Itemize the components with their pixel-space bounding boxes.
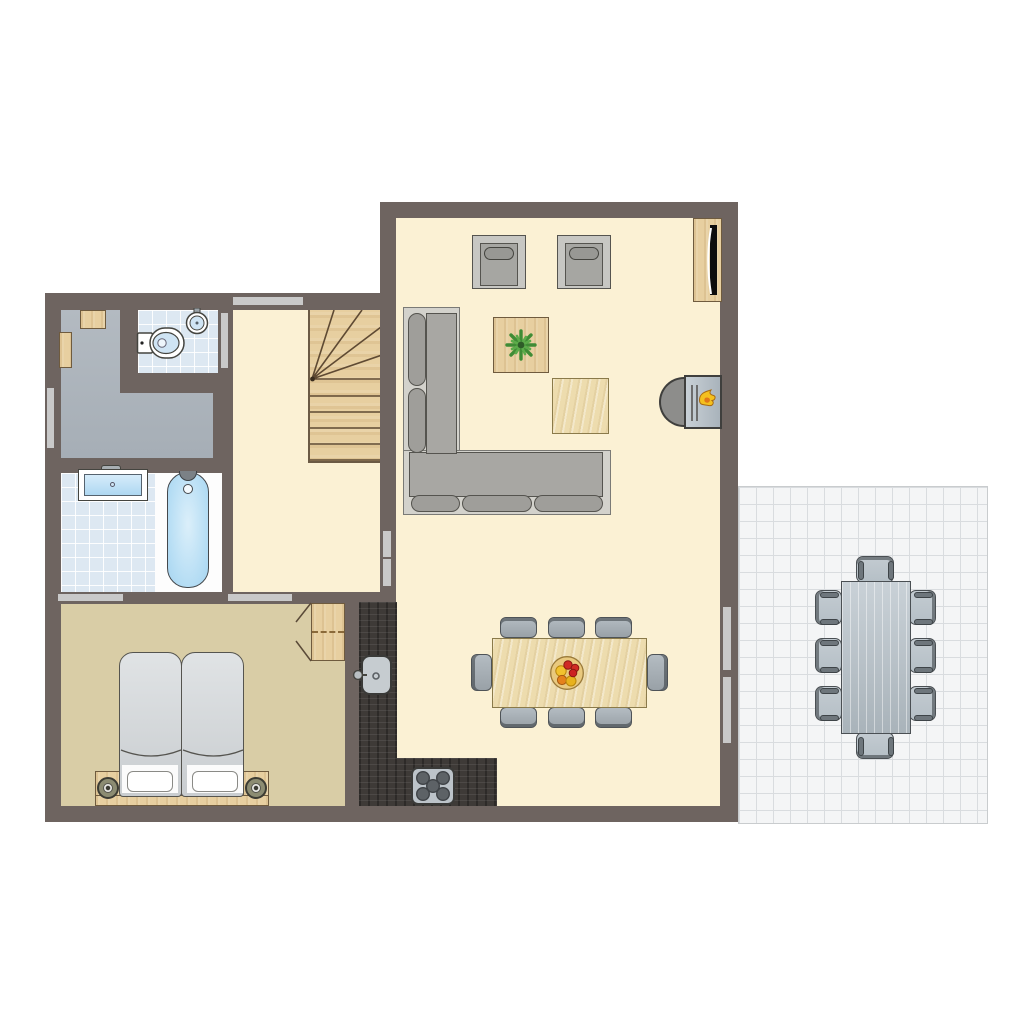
wardrobe-shelf-line bbox=[312, 631, 344, 633]
stove-flame-icon bbox=[697, 388, 718, 413]
tv bbox=[704, 223, 719, 297]
chair-arm bbox=[820, 688, 839, 694]
terrace-chair bbox=[909, 638, 936, 673]
sofa-seat bbox=[409, 452, 603, 497]
lamp-inner bbox=[103, 783, 113, 793]
terrace-chair bbox=[815, 686, 842, 721]
dining-chair bbox=[548, 617, 585, 638]
wall-bottom-exterior bbox=[45, 806, 738, 822]
basin-drain bbox=[110, 482, 115, 487]
sofa-cushion bbox=[534, 495, 603, 512]
bed-mattress bbox=[119, 652, 182, 797]
chair-arm bbox=[820, 667, 839, 673]
dining-chair bbox=[471, 654, 492, 691]
chair-arm bbox=[888, 737, 894, 756]
wall-bedroom-kitchen bbox=[345, 592, 359, 806]
terrace-chair bbox=[856, 556, 894, 583]
sofa-cushion bbox=[408, 313, 426, 386]
terrace-chair bbox=[909, 590, 936, 625]
bed-mattress bbox=[181, 652, 244, 797]
wall-bathroom-hallway bbox=[222, 473, 233, 592]
bathroom-washbasin bbox=[78, 469, 148, 501]
dining-chair bbox=[647, 654, 668, 691]
terrace-table bbox=[841, 581, 911, 734]
wall-living-top bbox=[380, 202, 738, 218]
potted-plant bbox=[503, 327, 539, 363]
utility-cabinet bbox=[80, 310, 106, 329]
chair-arm bbox=[820, 619, 839, 625]
armchair bbox=[557, 235, 611, 289]
terrace-door-marker bbox=[723, 607, 731, 670]
bed-pillow bbox=[192, 771, 238, 792]
terrace-tiled-floor bbox=[738, 486, 988, 824]
chair-arm bbox=[914, 688, 933, 694]
wall-toilet-bottom bbox=[120, 373, 233, 393]
terrace-chair bbox=[856, 732, 894, 759]
sofa-cushion bbox=[408, 388, 426, 453]
toilet-door-marker bbox=[221, 313, 228, 368]
armchair-seat bbox=[565, 243, 603, 286]
utility-window-marker bbox=[47, 388, 54, 448]
terrace-chair bbox=[909, 686, 936, 721]
chair-arm bbox=[914, 619, 933, 625]
dining-chair bbox=[500, 707, 537, 728]
floor-plan-canvas bbox=[0, 0, 1024, 1024]
chair-arm bbox=[820, 640, 839, 646]
sofa-seat bbox=[426, 313, 457, 454]
front-door-marker bbox=[233, 297, 303, 305]
chair-arm bbox=[914, 592, 933, 598]
armchair-pillow bbox=[484, 247, 514, 260]
fruit-bowl bbox=[549, 655, 585, 691]
stair-treads bbox=[310, 310, 385, 463]
corner-washbasin bbox=[184, 308, 210, 336]
terrace-chair bbox=[815, 638, 842, 673]
dining-chair bbox=[548, 707, 585, 728]
staircase bbox=[308, 310, 383, 463]
armchair bbox=[472, 235, 526, 289]
bathtub-knob bbox=[183, 484, 193, 494]
wardrobe bbox=[311, 603, 345, 661]
hallway-living-door-marker bbox=[383, 559, 391, 586]
dining-chair bbox=[595, 707, 632, 728]
nightstand-lamp bbox=[97, 777, 119, 799]
armchair-seat bbox=[480, 243, 518, 286]
chair-arm bbox=[888, 561, 894, 580]
duvet-fold-line bbox=[118, 748, 246, 768]
chair-arm bbox=[820, 592, 839, 598]
side-table bbox=[552, 378, 609, 434]
dining-chair bbox=[500, 617, 537, 638]
chair-arm bbox=[914, 715, 933, 721]
terrace-chair bbox=[815, 590, 842, 625]
wall-left-exterior bbox=[45, 293, 61, 822]
bathroom-bedroom-door-marker bbox=[58, 594, 123, 601]
toilet bbox=[136, 326, 188, 360]
lamp-inner bbox=[251, 783, 261, 793]
kitchen-sink bbox=[352, 652, 394, 698]
chair-arm bbox=[858, 737, 864, 756]
sofa-cushion bbox=[411, 495, 460, 512]
wardrobe-door-swing bbox=[294, 601, 312, 663]
stove-hob bbox=[411, 767, 455, 805]
dining-chair bbox=[595, 617, 632, 638]
wall-leftwing-top bbox=[45, 293, 396, 310]
hallway-bedroom-door-marker bbox=[228, 594, 292, 601]
utility-shelf bbox=[59, 332, 72, 368]
sofa-cushion bbox=[462, 495, 532, 512]
hallway-living-door-marker bbox=[383, 531, 391, 557]
terrace-door-marker bbox=[723, 677, 731, 743]
chair-arm bbox=[914, 640, 933, 646]
chair-arm bbox=[858, 561, 864, 580]
nightstand-lamp bbox=[245, 777, 267, 799]
armchair-pillow bbox=[569, 247, 599, 260]
stove-vent-line bbox=[691, 385, 693, 421]
chair-arm bbox=[820, 715, 839, 721]
chair-arm bbox=[914, 667, 933, 673]
bed-pillow bbox=[127, 771, 173, 792]
